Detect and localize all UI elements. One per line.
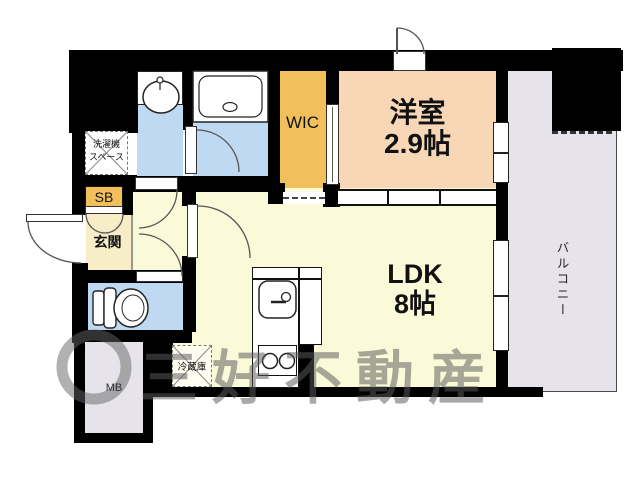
wall (74, 433, 153, 443)
ldk-name: LDK (387, 260, 443, 290)
entrance-door-arc (28, 222, 81, 263)
entrance-step-line (131, 211, 133, 271)
ldk-door-leaf (187, 204, 198, 258)
entrance-label: 玄関 (84, 233, 131, 251)
western-room-size: 2.9帖 (384, 129, 451, 160)
wall (72, 131, 86, 215)
shoe-box-label: SB (85, 187, 123, 206)
watermark-text: 三好不動産 (140, 331, 500, 415)
ldk-size: 8帖 (394, 290, 436, 320)
western-room-name: 洋室 (389, 98, 445, 129)
wall (74, 343, 85, 443)
bathroom-door-leaf (185, 126, 197, 174)
ldk-label: LDK 8帖 (350, 256, 480, 324)
washroom-door-leaf (135, 177, 178, 190)
western-room-entry-door-frame (393, 51, 426, 71)
wall (326, 70, 339, 104)
kitchen-counter-edge-line (252, 278, 322, 280)
wall (496, 182, 508, 241)
wall (183, 70, 193, 130)
floor-plan: 洋室 2.9帖 LDK 8帖 WIC バルコニー 玄関 SB MB 洗濯機 スペ… (0, 0, 640, 480)
toilet-door-leaf (136, 271, 183, 282)
wall (183, 283, 196, 332)
balcony-divider (552, 131, 612, 134)
wall (69, 50, 623, 71)
balcony-label: バルコニー (552, 220, 572, 340)
hall-floor (131, 188, 183, 271)
wall (69, 50, 138, 133)
entrance-door-leaf (26, 214, 83, 222)
washbasin-counter (137, 71, 183, 105)
wic-label: WIC (279, 111, 326, 135)
shoe-box-door-strip (85, 206, 123, 214)
wall (182, 256, 196, 283)
wall (123, 188, 133, 215)
western-room-label: 洋室 2.9帖 (339, 88, 496, 170)
toilet-floor (88, 283, 183, 330)
wic-sliding-door (326, 104, 339, 185)
wall (496, 70, 508, 123)
meter-box-label: MB (85, 380, 143, 395)
western-ldk-sliding-partition (338, 189, 496, 206)
washing-machine-space-label: 洗濯機 スペース (85, 136, 128, 166)
wall (552, 48, 621, 131)
bathroom-floor (193, 71, 268, 176)
wic-open-doorway (283, 192, 325, 204)
